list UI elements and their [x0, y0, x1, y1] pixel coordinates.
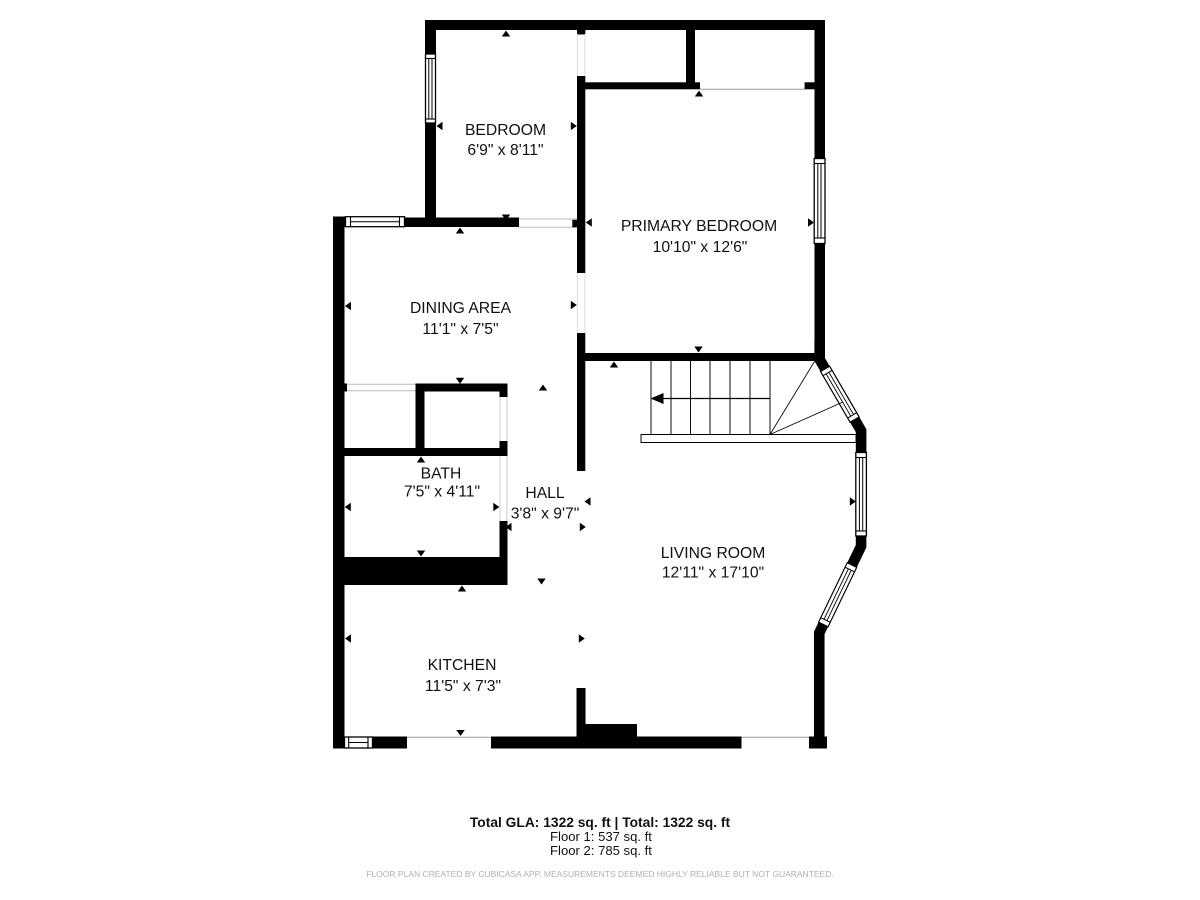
- svg-text:PRIMARY BEDROOM: PRIMARY BEDROOM: [621, 218, 777, 235]
- svg-text:10'10" x 12'6": 10'10" x 12'6": [653, 239, 748, 256]
- svg-text:11'1" x 7'5": 11'1" x 7'5": [422, 321, 498, 338]
- svg-text:Total GLA: 1322 sq. ft | Total: Total GLA: 1322 sq. ft | Total: 1322 sq.…: [470, 815, 731, 830]
- svg-text:3'8" x 9'7": 3'8" x 9'7": [511, 505, 580, 522]
- svg-text:7'5" x 4'11": 7'5" x 4'11": [404, 484, 480, 501]
- svg-text:BEDROOM: BEDROOM: [465, 122, 546, 139]
- svg-text:DINING AREA: DINING AREA: [410, 300, 512, 317]
- svg-text:BATH: BATH: [421, 466, 462, 483]
- svg-text:KITCHEN: KITCHEN: [428, 657, 497, 674]
- svg-text:Floor 1: 537 sq. ft: Floor 1: 537 sq. ft: [550, 829, 652, 844]
- svg-text:FLOOR PLAN CREATED BY CUBICASA: FLOOR PLAN CREATED BY CUBICASA APP. MEAS…: [366, 869, 833, 879]
- svg-text:Floor 2: 785 sq. ft: Floor 2: 785 sq. ft: [550, 843, 652, 858]
- svg-text:12'11" x 17'10": 12'11" x 17'10": [662, 565, 764, 582]
- svg-text:11'5" x 7'3": 11'5" x 7'3": [425, 678, 501, 695]
- svg-text:LIVING ROOM: LIVING ROOM: [661, 545, 766, 562]
- svg-text:HALL: HALL: [525, 485, 565, 502]
- svg-text:6'9" x 8'11": 6'9" x 8'11": [467, 142, 543, 159]
